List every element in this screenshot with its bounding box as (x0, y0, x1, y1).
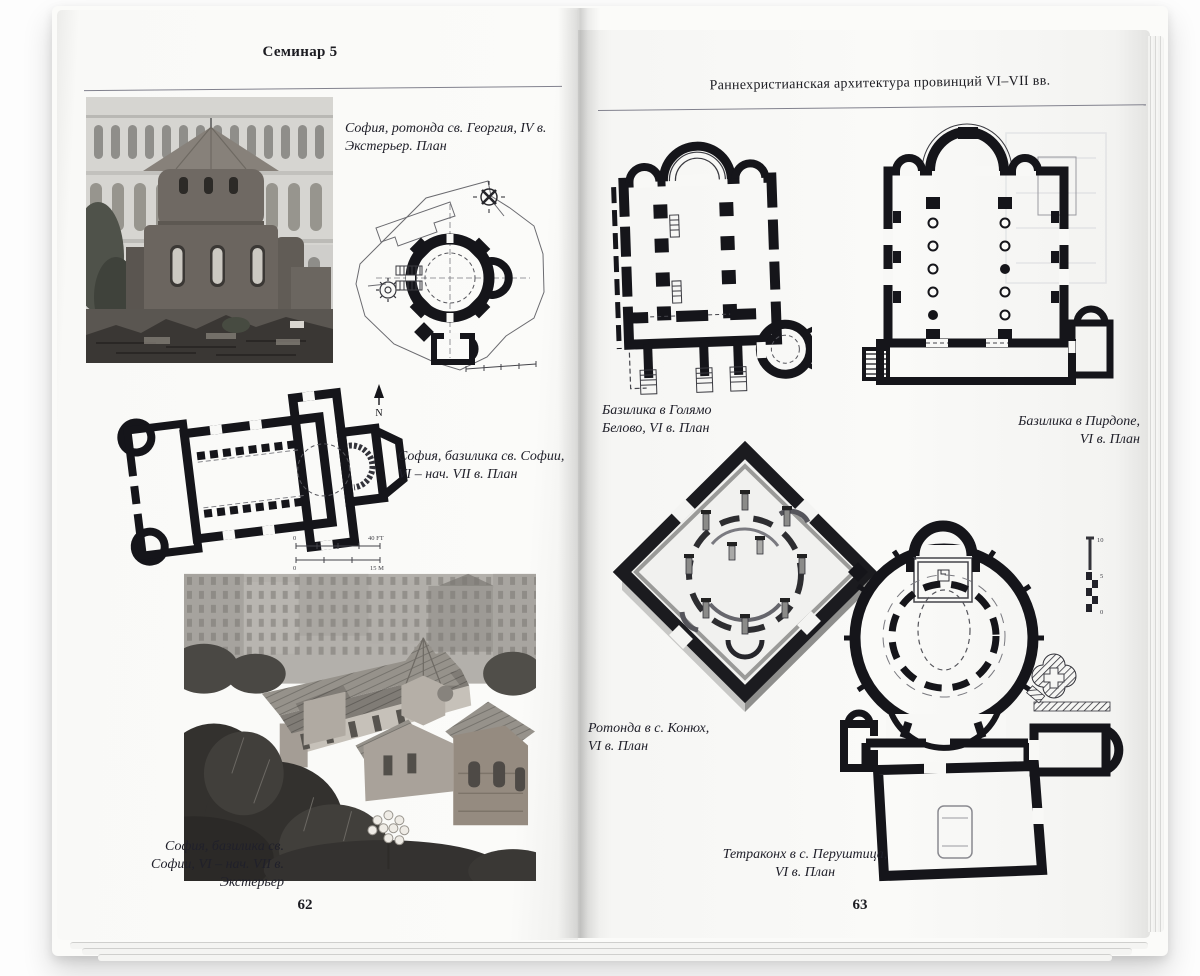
svg-text:0: 0 (293, 565, 296, 572)
golyamo-belovo-plan-figure (596, 110, 812, 398)
north-arrow-icon: N (374, 384, 384, 419)
figure-caption: София, базилика св. Софии, VI – нач. VII… (151, 838, 284, 893)
tetraconch-plan-figure: 10 5 0 (838, 518, 1136, 886)
book-photo: Семинар 5 (0, 0, 1200, 976)
sofia-basilica-plan-figure: N 0 40 FT 0 15 M (116, 380, 420, 572)
figure-caption: София, ротонда св. Георгия, IV в. Экстер… (345, 120, 546, 156)
svg-text:5: 5 (1100, 573, 1103, 580)
svg-text:0: 0 (1100, 609, 1103, 616)
running-head-left: Семинар 5 (170, 44, 430, 61)
svg-text:15 M: 15 M (370, 565, 384, 572)
scale-bar (466, 361, 536, 372)
rotunda-exterior-photo (86, 97, 333, 363)
rotunda-site-plan-figure (338, 166, 562, 392)
page-number-left: 62 (285, 897, 325, 914)
svg-text:N: N (375, 408, 382, 419)
svg-text:40 FT: 40 FT (368, 535, 384, 542)
figure-caption: София, базилика св. Софии, VI – нач. VII… (398, 448, 564, 484)
page-number-right: 63 (840, 897, 880, 914)
pirdop-plan-figure (856, 113, 1120, 405)
scale-bar: 10 5 0 (1086, 537, 1104, 616)
svg-text:0: 0 (293, 535, 296, 542)
scale-bar (296, 543, 380, 563)
svg-text:10: 10 (1097, 537, 1104, 544)
figure-caption: Базилика в Пирдопе, VI в. План (1018, 413, 1140, 449)
figure-caption: Тетраконх в с. Перуштица, VI в. План (665, 846, 945, 882)
figure-caption: Ротонда в с. Конюх, VI в. План (588, 720, 709, 756)
sofia-basilica-exterior-photo (184, 573, 536, 881)
page-stack-right-edge (1148, 36, 1164, 932)
page-stack-bottom (98, 954, 1112, 961)
